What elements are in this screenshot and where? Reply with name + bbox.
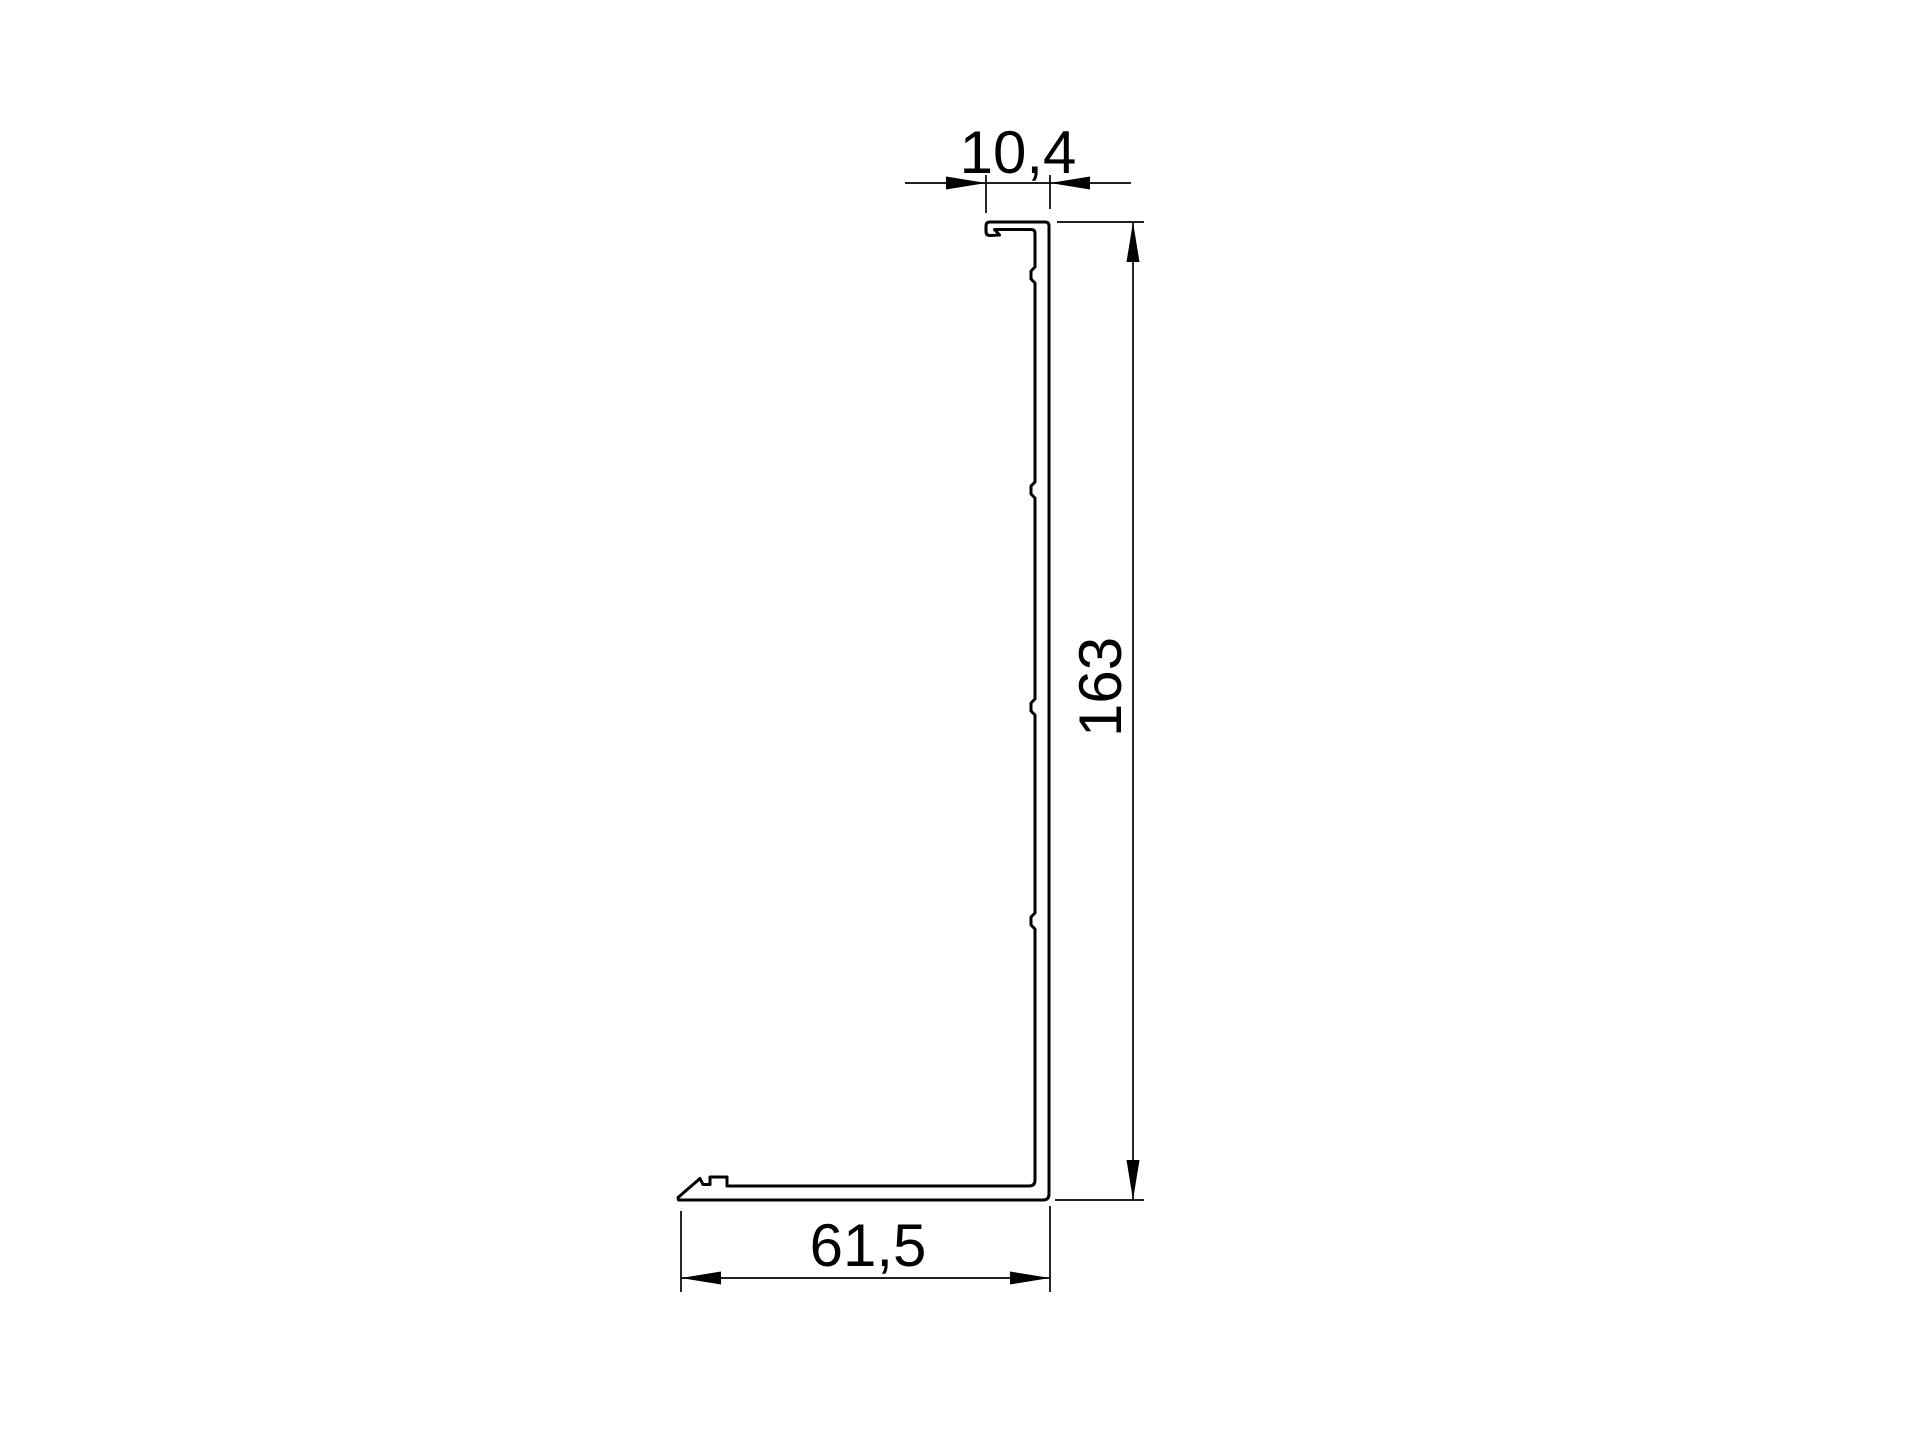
drawing-sheet: 10,4 163 61,5 [0,0,1919,1440]
bottom-width-arrowhead-left-icon [681,1272,721,1285]
height-label: 163 [1067,637,1134,737]
dimension-top-width: 10,4 [905,119,1131,213]
height-arrowhead-bottom-icon [1127,1160,1140,1200]
profile-section [678,222,1049,1200]
profile-outline [678,222,1049,1200]
top-width-label: 10,4 [960,119,1077,186]
dimension-bottom-width: 61,5 [681,1206,1050,1292]
bottom-width-label: 61,5 [810,1212,927,1279]
height-arrowhead-top-icon [1127,222,1140,262]
dimension-height: 163 [1055,222,1144,1200]
profile-drawing: 10,4 163 61,5 [0,0,1919,1440]
bottom-width-arrowhead-right-icon [1010,1272,1050,1285]
